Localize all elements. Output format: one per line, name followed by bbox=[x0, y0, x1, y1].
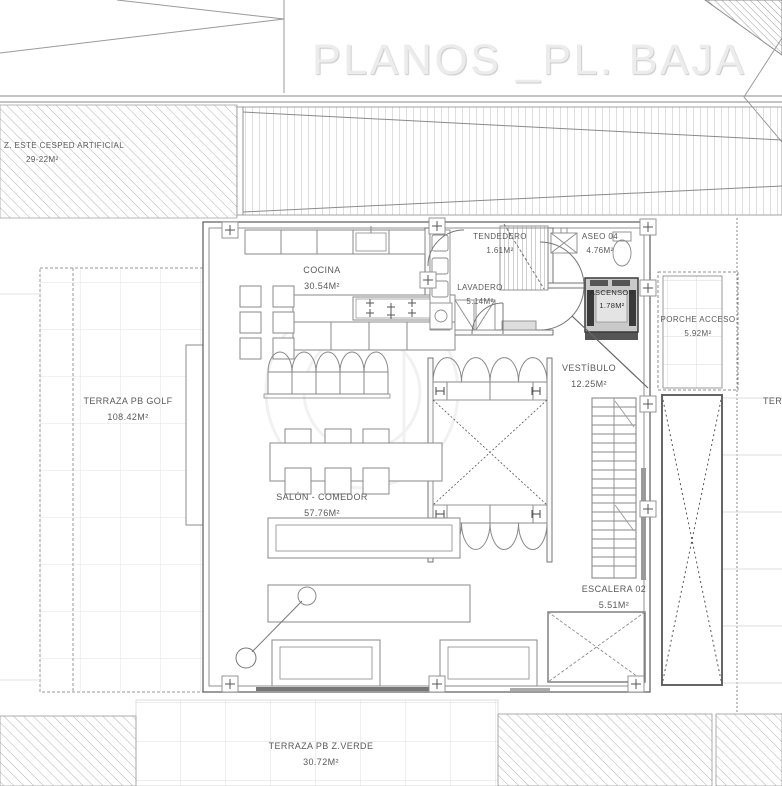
bottom-terrace-band bbox=[0, 687, 782, 786]
sheet-title: PLANOS _PL. BAJA bbox=[312, 36, 746, 85]
stairs bbox=[592, 398, 636, 578]
planter bbox=[186, 345, 203, 525]
drying-area bbox=[500, 224, 548, 290]
right-terrace bbox=[723, 218, 782, 714]
porche-acceso-area bbox=[658, 272, 738, 390]
plan-linework bbox=[0, 0, 782, 786]
terraza-golf-area bbox=[0, 268, 203, 692]
glazing-bar bbox=[256, 687, 436, 691]
cesped-hatch-area bbox=[0, 105, 237, 218]
terraza-verde-grid bbox=[136, 700, 498, 786]
floor-plan-sheet: PLANOS _PL. BAJA Z. ESTE CESPED ARTIFICI… bbox=[0, 0, 782, 786]
kitchen-sink bbox=[356, 233, 386, 251]
coffee-table bbox=[268, 585, 470, 622]
upper-site-band bbox=[0, 105, 782, 218]
elevator bbox=[585, 278, 638, 332]
kitchen-counter bbox=[245, 226, 425, 254]
tall-column-element bbox=[662, 395, 722, 685]
washing-machine bbox=[430, 303, 452, 329]
